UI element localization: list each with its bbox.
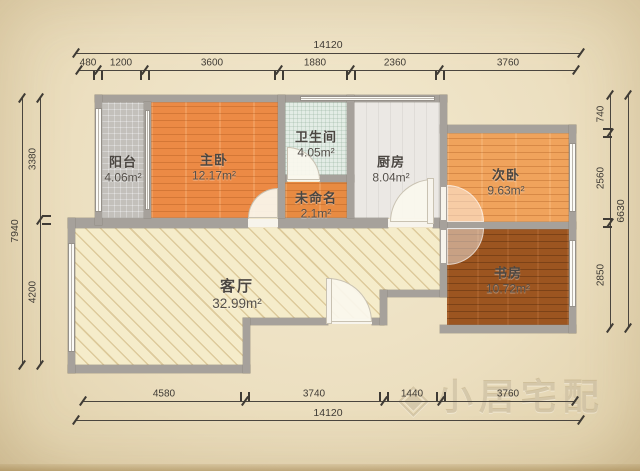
room-name: 客厅 bbox=[212, 275, 262, 296]
door-leaf-entrance bbox=[326, 278, 332, 324]
dim-top-seg: 2360 bbox=[384, 58, 406, 69]
tick bbox=[624, 323, 632, 333]
tick bbox=[274, 71, 284, 80]
wall-wing-bottom bbox=[440, 325, 576, 333]
dim-top-seg: 480 bbox=[80, 58, 97, 69]
room-area: 12.17m² bbox=[192, 169, 236, 183]
dim-line-right-overall bbox=[628, 95, 629, 328]
room-name: 未命名 bbox=[295, 188, 337, 207]
room-area: 32.99m² bbox=[212, 296, 262, 311]
dim-top-seg: 3600 bbox=[201, 58, 223, 69]
watermark-text: 小居宅配 bbox=[437, 376, 605, 417]
room-area: 9.63m² bbox=[487, 184, 524, 198]
room-name: 厨房 bbox=[372, 152, 409, 171]
tick bbox=[346, 71, 356, 80]
dim-top-seg: 3760 bbox=[497, 58, 519, 69]
tick bbox=[240, 392, 250, 401]
wall-step-upper bbox=[380, 290, 447, 297]
tick bbox=[603, 218, 612, 228]
wall-step-vertical-1 bbox=[243, 318, 250, 373]
room-name: 次卧 bbox=[487, 165, 524, 184]
room-area: 4.06m² bbox=[104, 171, 141, 185]
room-label-kitchen: 厨房 8.04m² bbox=[372, 152, 409, 185]
wall-bath-right bbox=[347, 95, 354, 218]
tick bbox=[603, 128, 612, 138]
room-name: 主卧 bbox=[192, 150, 236, 169]
tick bbox=[140, 71, 150, 80]
tick bbox=[435, 71, 445, 80]
dim-line-bottom-overall bbox=[76, 420, 581, 421]
threshold-second-bedroom-door bbox=[441, 187, 446, 220]
room-area: 2.1m² bbox=[295, 207, 337, 221]
room-name: 阳台 bbox=[104, 152, 141, 171]
room-label-living: 客厅 32.99m² bbox=[212, 275, 262, 311]
room-label-balcony: 阳台 4.06m² bbox=[104, 152, 141, 185]
window-balcony-left bbox=[95, 108, 102, 212]
dim-right-overall: 6630 bbox=[615, 199, 627, 222]
tick bbox=[93, 71, 103, 80]
dim-bottom-seg: 4580 bbox=[153, 389, 175, 400]
tick bbox=[36, 360, 44, 370]
tick bbox=[572, 65, 580, 75]
window-balcony-divider bbox=[145, 110, 150, 210]
room-area: 8.04m² bbox=[372, 171, 409, 185]
threshold-master-door bbox=[248, 219, 278, 227]
tick bbox=[379, 392, 389, 401]
tick bbox=[42, 215, 51, 225]
room-name: 卫生间 bbox=[295, 127, 337, 146]
wall-master-right bbox=[278, 95, 285, 218]
room-name: 书房 bbox=[486, 263, 530, 282]
dim-left-overall: 7940 bbox=[9, 219, 21, 242]
dim-line-left-overall bbox=[22, 98, 23, 365]
wall-step-vertical-2 bbox=[380, 290, 387, 325]
dim-top-overall: 14120 bbox=[313, 39, 342, 51]
room-label-unnamed: 未命名 2.1m² bbox=[295, 188, 337, 221]
dim-right-seg: 2850 bbox=[596, 264, 607, 286]
wall-step-lower bbox=[243, 318, 328, 325]
dim-right-seg: 740 bbox=[596, 106, 607, 123]
dim-bottom-seg: 3740 bbox=[303, 389, 325, 400]
wall-living-bottom bbox=[68, 365, 250, 373]
dim-left-seg: 4200 bbox=[28, 281, 39, 303]
room-label-bathroom: 卫生间 4.05m² bbox=[295, 127, 337, 160]
room-label-master-bedroom: 主卧 12.17m² bbox=[192, 150, 236, 183]
tick bbox=[18, 360, 26, 370]
dim-top-seg: 1880 bbox=[304, 58, 326, 69]
dim-line-top-overall bbox=[76, 53, 581, 54]
window-second-bedroom-right bbox=[569, 143, 576, 212]
door-leaf-kitchen bbox=[427, 178, 434, 224]
dim-line-top-segments bbox=[79, 70, 576, 71]
dim-bottom-seg: 1440 bbox=[401, 389, 423, 400]
threshold-study-door bbox=[441, 230, 446, 263]
room-area: 10.72m² bbox=[486, 282, 530, 296]
room-label-second-bedroom: 次卧 9.63m² bbox=[487, 165, 524, 198]
dim-line-bottom-segments bbox=[83, 401, 575, 402]
floor-plan-canvas: 阳台 4.06m² 主卧 12.17m² 卫生间 4.05m² 未命名 2.1m… bbox=[0, 0, 640, 471]
window-study-right bbox=[569, 240, 576, 307]
dim-line-left-segments bbox=[40, 98, 41, 365]
room-label-study: 书房 10.72m² bbox=[486, 263, 530, 296]
window-living-left bbox=[68, 243, 75, 352]
tick bbox=[577, 48, 585, 58]
tick bbox=[606, 323, 614, 333]
dim-right-seg: 2560 bbox=[596, 167, 607, 189]
dim-top-seg: 1200 bbox=[110, 58, 132, 69]
wall-wing-top bbox=[440, 125, 576, 133]
tick bbox=[436, 392, 446, 401]
dim-bottom-seg: 3760 bbox=[497, 389, 519, 400]
dim-bottom-overall: 14120 bbox=[313, 407, 342, 419]
dim-left-seg: 3380 bbox=[28, 148, 39, 170]
window-top-kitchen bbox=[300, 96, 435, 101]
room-area: 4.05m² bbox=[295, 146, 337, 160]
